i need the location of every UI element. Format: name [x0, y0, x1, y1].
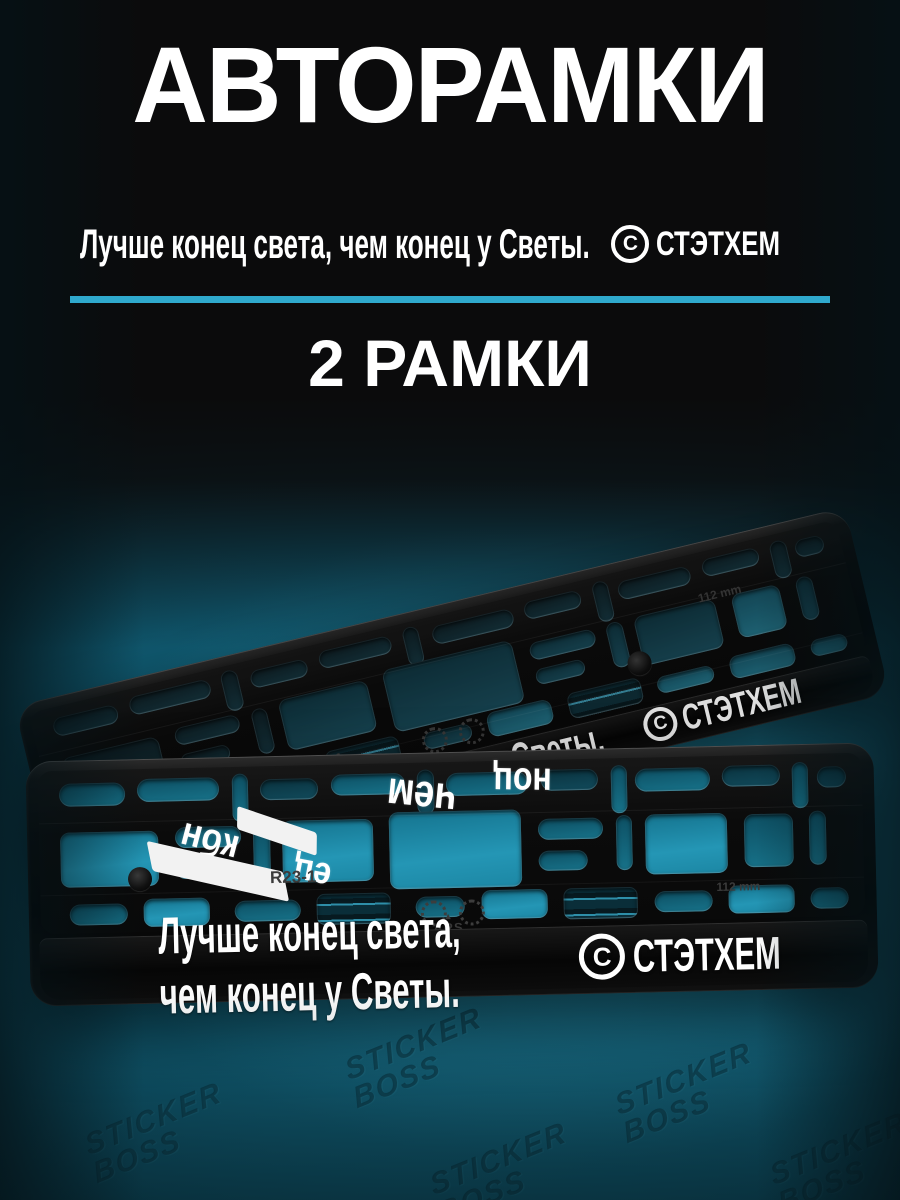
front-frame-size-mark: 112 mm	[716, 879, 760, 894]
frame-slot-cutout	[700, 547, 761, 578]
front-frame-brand-logo: С СТЭТХЕМ	[579, 924, 855, 984]
frame-slot-cutout	[523, 589, 584, 620]
frame-slot-cutout	[654, 890, 712, 912]
frame-slot-cutout	[58, 782, 124, 806]
frame-slot-cutout	[768, 539, 793, 580]
frame-slot-cutout	[794, 534, 826, 558]
divider-line	[70, 296, 830, 303]
frame-slot-cutout	[51, 703, 120, 737]
frame-slot-cutout	[616, 565, 693, 601]
frame-slot-cutout	[69, 903, 127, 925]
frame-slot-cutout	[564, 887, 639, 920]
frame-slot-cutout	[127, 679, 212, 717]
frame-slot-cutout	[219, 669, 245, 713]
frame-slot-cutout	[816, 766, 845, 788]
frame-slot-cutout	[791, 762, 808, 808]
frame-slot-cutout	[137, 777, 220, 802]
page-title: АВТОРАМКИ	[14, 28, 887, 141]
copyright-ring-icon: С	[611, 225, 649, 263]
copyright-ring-icon: С	[579, 933, 626, 980]
frame-slot-cutout	[481, 889, 548, 920]
frame-slot-cutout	[260, 778, 318, 800]
frame-slot-cutout	[610, 765, 628, 814]
header-brand-logo: С СТЭТХЕМ	[611, 225, 819, 264]
frame-slot-cutout	[615, 815, 633, 871]
frame-slot-cutout	[277, 680, 378, 752]
frame-slot-cutout	[743, 813, 794, 868]
frame-slot-cutout	[537, 817, 603, 840]
header-brand-text: СТЭТХЕМ	[656, 225, 780, 264]
tagline-text: Лучше конец света, чем конец у Светы.	[80, 221, 590, 267]
frame-slot-cutout	[656, 664, 717, 695]
frame-slot-cutout	[317, 635, 394, 670]
frame-slot-cutout	[809, 632, 849, 658]
frame-slot-cutout	[635, 768, 710, 792]
frame-slot-cutout	[538, 850, 588, 871]
tagline-row: Лучше конец света, чем конец у Светы. С …	[0, 221, 900, 267]
product-card: STICKER BOSS STICKER BOSS STICKER BOSS S…	[0, 0, 900, 1200]
frame-slot-cutout	[249, 658, 310, 689]
frame-slot-cutout	[430, 607, 515, 645]
front-frame-print-bar: Лучше конец света, чем конец у Светы. С …	[39, 920, 868, 1001]
frame-slot-cutout	[173, 713, 242, 746]
tagline-wrap: Лучше конец света, чем конец у Светы.	[80, 221, 585, 267]
frame-slot-cutout	[794, 574, 821, 622]
front-frame-print-text: Лучше конец света, чем конец у Светы.	[158, 900, 476, 1027]
frame-count-label: 2 РАМКИ	[0, 325, 900, 401]
front-frame-brand-text: СТЭТХЕМ	[633, 926, 782, 983]
copyright-ring-icon: С	[640, 703, 681, 744]
frame-slot-cutout	[722, 764, 780, 786]
frame-slot-cutout	[250, 707, 277, 756]
frame-slot-cutout	[528, 628, 597, 661]
frame-slot-cutout	[809, 811, 827, 865]
frame-slot-cutout	[811, 887, 849, 909]
license-plate-frame-front: чем ноц кбн ец R23-1 112 mm ▲ ARS Лучше …	[25, 742, 878, 1006]
reflection-fragment: ноц	[493, 758, 552, 804]
frame-slot-cutout	[591, 580, 617, 624]
frame-slot-cutout	[644, 813, 728, 875]
frame-slot-cutout	[534, 658, 586, 685]
reflection-fragment: чем	[384, 767, 458, 828]
front-frame-marking: R23-1	[270, 867, 317, 888]
